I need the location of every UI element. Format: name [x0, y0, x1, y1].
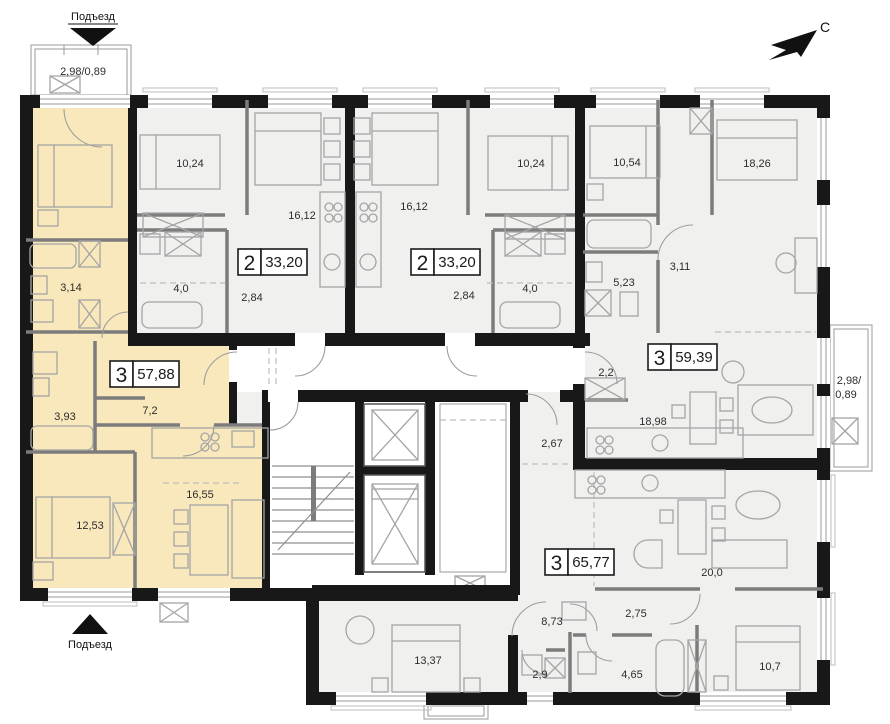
- floor-plan-svg: 3,14 3,93 7,2 12,53 16,55 10,24 16,12 4,…: [0, 0, 890, 724]
- room-area-label: 20,0: [701, 567, 722, 579]
- room-area-label: 10,7: [759, 661, 780, 673]
- badge-apt-3a-highlight[interactable]: 3 57,88: [110, 361, 179, 387]
- room-area-label: 2,67: [541, 438, 562, 450]
- room-area-label: 3,14: [60, 282, 81, 294]
- room-area-label: 4,0: [522, 283, 537, 295]
- north-label: С: [820, 19, 830, 35]
- badge-apt-3b[interactable]: 3 59,39: [648, 344, 717, 370]
- room-area-label: 10,24: [176, 158, 204, 170]
- entrance-bottom-label: Подъезд: [68, 639, 113, 651]
- floor-plan-page: 3,14 3,93 7,2 12,53 16,55 10,24 16,12 4,…: [0, 0, 890, 724]
- room-area-label: 7,2: [142, 405, 157, 417]
- badge-rooms: 2: [417, 252, 429, 275]
- balcony-top-label: 2,98/0,89: [60, 66, 106, 78]
- room-area-label: 2,84: [453, 290, 474, 302]
- room-area-label: 3,11: [670, 261, 691, 273]
- room-area-label: 13,37: [414, 655, 442, 667]
- room-area-label: 4,0: [173, 283, 188, 295]
- room-area-label: 18,26: [743, 158, 771, 170]
- room-area-label: 5,23: [613, 277, 634, 289]
- room-area-label: 16,55: [186, 489, 214, 501]
- entrance-bottom-arrow-icon: [72, 614, 108, 634]
- room-area-label: 10,54: [613, 157, 641, 169]
- entrance-bottom: Подъезд: [68, 614, 113, 651]
- badge-apt-3c[interactable]: 3 65,77: [545, 549, 614, 575]
- balcony-right-label-1: 2,98/: [837, 375, 862, 387]
- badge-area: 33,20: [438, 254, 476, 271]
- room-area-label: 18,98: [639, 416, 667, 428]
- badge-rooms: 2: [244, 252, 256, 275]
- entrance-top-arrow-icon: [70, 28, 116, 46]
- room-area-label: 2,84: [241, 292, 262, 304]
- badge-area: 57,88: [137, 366, 175, 383]
- balcony-right-label-2: 0,89: [835, 389, 856, 401]
- entrance-top: Подъезд: [68, 11, 118, 46]
- badge-area: 59,39: [675, 349, 713, 366]
- badge-area: 33,20: [265, 254, 303, 271]
- room-area-label: 4,65: [621, 669, 642, 681]
- room-area-label: 16,12: [288, 210, 316, 222]
- compass-north: С: [769, 19, 830, 60]
- badge-apt-2a[interactable]: 2 33,20: [238, 249, 307, 275]
- badge-area: 65,77: [572, 554, 610, 571]
- room-area-label: 2,75: [625, 608, 646, 620]
- room-area-label: 12,53: [76, 520, 104, 532]
- room-area-label: 2,9: [532, 669, 547, 681]
- badge-rooms: 3: [116, 364, 128, 387]
- room-area-label: 10,24: [517, 158, 545, 170]
- room-area-label: 8,73: [541, 616, 562, 628]
- badge-rooms: 3: [654, 347, 666, 370]
- badge-rooms: 3: [551, 552, 563, 575]
- entrance-top-label: Подъезд: [71, 11, 116, 23]
- badge-apt-2b[interactable]: 2 33,20: [411, 249, 480, 275]
- north-arrow-icon: [769, 30, 817, 60]
- room-area-label: 16,12: [400, 201, 428, 213]
- room-area-label: 2,2: [598, 367, 613, 379]
- room-area-label: 3,93: [54, 411, 75, 423]
- corridor: [235, 344, 575, 392]
